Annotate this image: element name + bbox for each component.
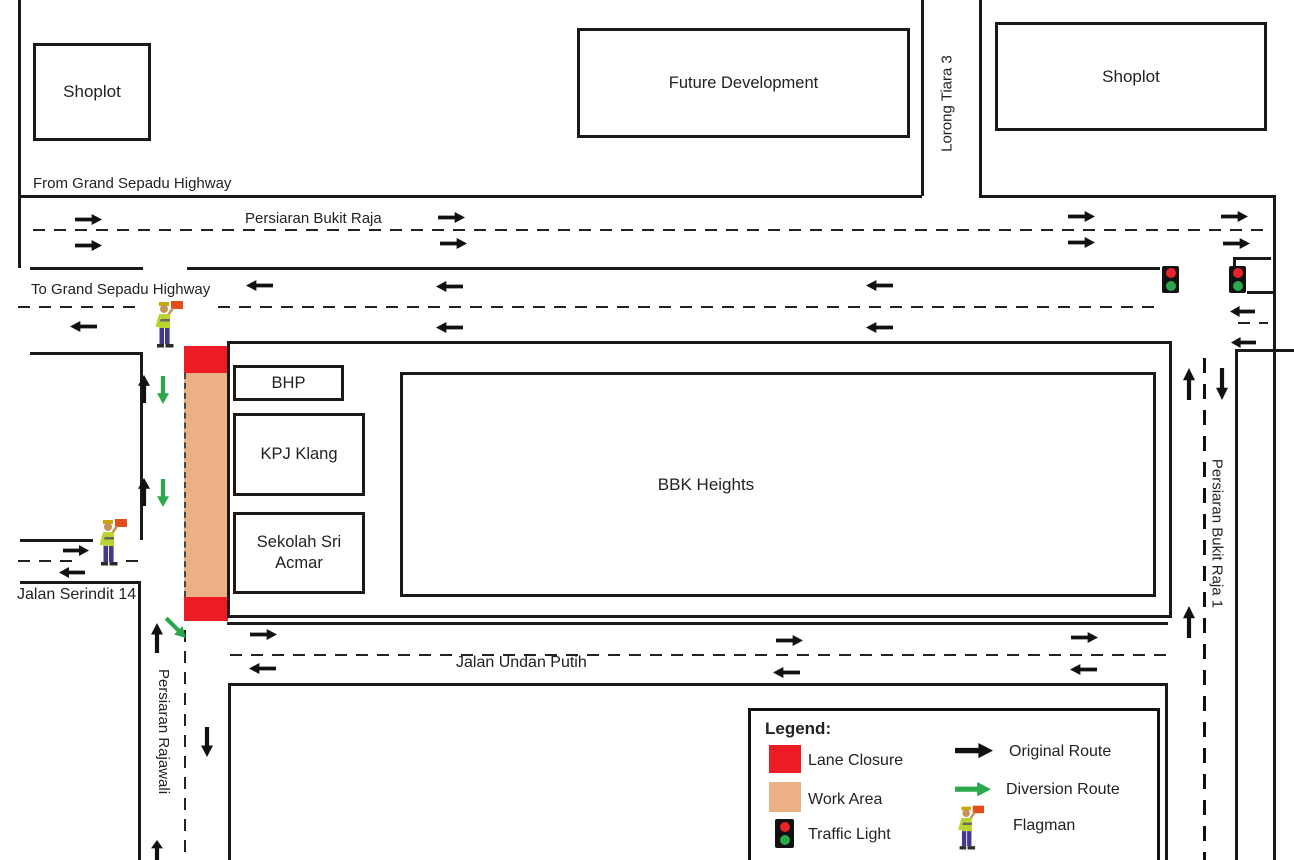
original-route-arrow	[866, 322, 893, 333]
road-edge	[20, 195, 922, 198]
original-route-arrow	[436, 322, 463, 333]
building-bbk-heights: BBK Heights	[400, 372, 1156, 597]
building-label: Future Development	[669, 73, 819, 94]
westbound-centerline	[18, 306, 143, 308]
original-route-arrow	[70, 321, 97, 332]
green-lamp	[1233, 281, 1243, 291]
building-edge	[138, 581, 141, 860]
original-route-arrow	[75, 240, 102, 251]
flagman-icon	[953, 801, 985, 855]
green-lamp	[1166, 281, 1176, 291]
red-lamp	[780, 822, 790, 832]
original-route-arrow	[151, 623, 163, 653]
lane-closure-north	[184, 346, 228, 373]
building-label: Shoplot	[63, 81, 121, 102]
rajawali-centerline	[184, 630, 186, 860]
label-jalan-undan-putih: Jalan Undan Putih	[456, 654, 587, 672]
label-persiaran-rajawali: Persiaran Rajawali	[155, 659, 172, 804]
road-edge	[1235, 349, 1294, 352]
lane-closure-south	[184, 597, 228, 621]
original-route-arrow	[438, 212, 465, 223]
flagman-icon	[150, 296, 184, 356]
original-route-arrow	[1223, 238, 1250, 249]
traffic-light-icon	[1162, 266, 1179, 293]
label-jalan-serindit-14: Jalan Serindit 14	[17, 586, 136, 604]
original-route-arrow	[249, 663, 276, 674]
signal-bracket	[1233, 257, 1271, 260]
building-label: BBK Heights	[658, 474, 754, 495]
original-route-arrow	[1068, 211, 1095, 222]
legend: Legend: Lane Closure Work Area Traffic L…	[748, 708, 1160, 860]
work-area	[184, 373, 230, 597]
signal-bracket	[1247, 291, 1274, 294]
label-from-grand-sepadu: From Grand Sepadu Highway	[33, 175, 231, 192]
original-route-arrow	[75, 214, 102, 225]
diversion-route-arrow	[157, 376, 169, 404]
lane-closure-swatch	[769, 745, 801, 773]
lorong-tiara-left-edge	[921, 0, 924, 196]
original-route-arrow	[59, 567, 85, 578]
traffic-light-icon	[775, 819, 794, 848]
bukit-raja-1-centerline	[1203, 358, 1206, 860]
map-left-boundary	[18, 0, 21, 268]
label-persiaran-bukit-raja-1: Persiaran Bukit Raja 1	[1209, 452, 1226, 616]
road-edge	[1235, 349, 1238, 860]
original-route-arrow	[1183, 368, 1195, 400]
original-route-arrow	[151, 840, 163, 860]
undan-putih-north-edge	[227, 622, 1168, 625]
original-route-arrow	[1221, 211, 1248, 222]
original-route-arrow	[1183, 606, 1195, 638]
original-route-arrow	[440, 238, 467, 249]
original-route-arrow	[1068, 237, 1095, 248]
original-route-arrow	[866, 280, 893, 291]
building-shoplot-left: Shoplot	[33, 43, 151, 141]
original-route-arrow	[250, 629, 277, 640]
original-route-arrow	[138, 478, 150, 506]
road-edge	[979, 195, 1276, 198]
road-edge	[187, 267, 1160, 270]
road-edge	[30, 267, 143, 270]
building-label: BHP	[272, 373, 306, 394]
diversion-route-arrow	[955, 782, 991, 796]
original-route-arrow	[138, 375, 150, 403]
original-route-arrow	[773, 667, 800, 678]
building-label: KPJ Klang	[260, 444, 337, 465]
legend-title: Legend:	[765, 719, 831, 739]
serindit-centerline	[126, 560, 140, 562]
lorong-tiara-right-edge	[979, 0, 982, 196]
label-persiaran-bukit-raja: Persiaran Bukit Raja	[245, 210, 382, 227]
original-route-arrow	[1071, 632, 1098, 643]
work-area-swatch	[769, 782, 801, 812]
serindit-south-edge	[20, 581, 138, 584]
flagman-icon	[94, 514, 128, 576]
original-route-arrow	[246, 280, 273, 291]
legend-item-label: Traffic Light	[808, 826, 891, 844]
legend-item-label: Work Area	[808, 791, 882, 809]
legend-item-label: Original Route	[1009, 743, 1111, 761]
traffic-light-icon	[1229, 266, 1246, 293]
undan-putih-centerline	[230, 654, 1168, 656]
building-sekolah-sri-acmar: Sekolah Sri Acmar	[233, 512, 365, 594]
junction-dash	[1238, 322, 1268, 324]
bukit-raja-centerline	[33, 229, 1263, 231]
building-label: Shoplot	[1102, 66, 1160, 87]
building-bhp: BHP	[233, 365, 344, 401]
westbound-centerline	[218, 306, 1163, 308]
red-lamp	[1233, 268, 1243, 278]
label-lorong-tiara-3: Lorong Tiara 3	[939, 49, 956, 159]
serindit-centerline	[18, 560, 80, 562]
building-label: Sekolah Sri Acmar	[257, 532, 341, 573]
original-route-arrow	[63, 545, 89, 556]
legend-item-label: Flagman	[1013, 817, 1075, 835]
building-kpj-klang: KPJ Klang	[233, 413, 365, 496]
original-route-arrow	[201, 727, 213, 757]
original-route-arrow	[1216, 368, 1228, 400]
traffic-light-icon	[775, 819, 794, 848]
serindit-north-edge	[20, 539, 93, 542]
legend-item-label: Diversion Route	[1006, 781, 1120, 799]
diversion-route-arrow	[157, 479, 169, 507]
building-future-development: Future Development	[577, 28, 910, 138]
road-edge	[1273, 197, 1276, 860]
green-lamp	[780, 835, 790, 845]
legend-item-label: Lane Closure	[808, 752, 903, 770]
building-edge	[30, 352, 140, 355]
original-route-arrow	[1230, 306, 1255, 317]
red-lamp	[1166, 268, 1176, 278]
building-shoplot-right: Shoplot	[995, 22, 1267, 131]
original-route-arrow	[1231, 337, 1256, 348]
original-route-arrow	[436, 281, 463, 292]
traffic-diversion-plan: Shoplot Future Development Shoplot BBK H…	[0, 0, 1294, 860]
original-route-arrow	[955, 743, 993, 758]
original-route-arrow	[1070, 664, 1097, 675]
original-route-arrow	[776, 635, 803, 646]
